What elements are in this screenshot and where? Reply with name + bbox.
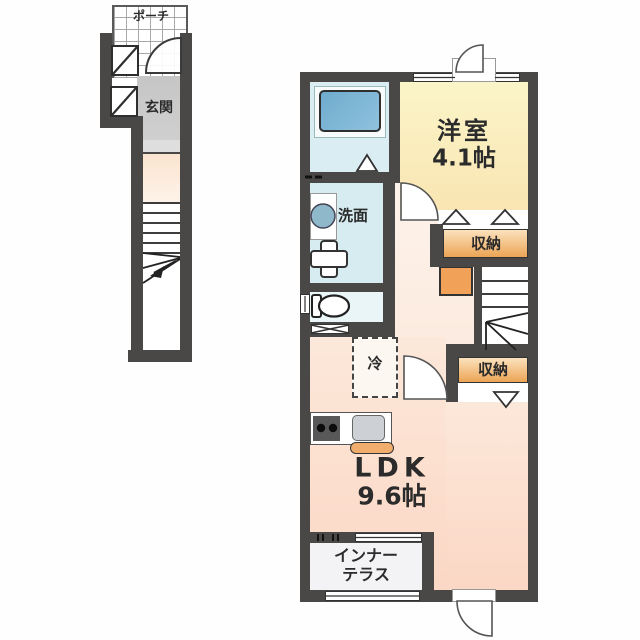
terrace-door-frame: [452, 589, 496, 602]
wall: [131, 116, 143, 362]
wall: [310, 283, 395, 292]
stairwell-floor: [143, 203, 180, 350]
wall: [389, 82, 400, 172]
floor-plan: ポーチ 玄関 洋室 4.1帖 収納 収納 洗面 冷 LDK 9.6帖 インナー …: [0, 0, 640, 640]
refrigerator-label: 冷: [367, 357, 382, 372]
wall: [383, 172, 395, 337]
inner-terrace-label-line1: インナー: [334, 548, 398, 564]
wall: [422, 532, 434, 590]
wall: [300, 72, 310, 602]
entrance-label: 玄関: [145, 101, 173, 115]
louver-window: [311, 324, 349, 334]
storage-lower-doorstrip: [458, 383, 528, 402]
ldk-size-label: 9.6帖: [357, 484, 426, 509]
window: [325, 591, 420, 601]
wall: [430, 258, 528, 267]
stair-hall-square: [439, 266, 473, 296]
storage-lower-label: 収納: [478, 363, 508, 378]
window: [413, 73, 455, 82]
window: [355, 533, 422, 542]
meter-box: [110, 86, 138, 117]
western-room-size-label: 4.1帖: [432, 148, 496, 171]
inner-terrace-label-line2: テラス: [342, 567, 390, 583]
wall: [474, 267, 482, 350]
western-room-label: 洋室: [437, 119, 491, 143]
porch-label: ポーチ: [133, 10, 169, 22]
wall: [446, 344, 528, 357]
kitchen-stove: [313, 416, 340, 441]
stair-landing-upper: [143, 154, 180, 203]
washroom-label: 洗面: [338, 209, 368, 224]
wall: [446, 344, 458, 402]
window: [300, 294, 310, 314]
entry-door-frame: [452, 58, 496, 82]
window: [495, 73, 520, 82]
wall: [528, 72, 538, 602]
ldk-label: LDK: [354, 455, 430, 482]
meter-box: [111, 45, 139, 76]
kitchen-sink: [352, 415, 385, 441]
ldk-floor-right: [446, 402, 528, 590]
toilet-room-floor: [310, 292, 383, 322]
wall: [180, 33, 192, 362]
storage-upper-label: 収納: [471, 237, 501, 252]
entrance-step: [143, 140, 180, 154]
unit-stairs-floor: [482, 267, 528, 350]
wall: [128, 350, 192, 362]
wash-basin-counter: [310, 193, 337, 240]
bathtub: [319, 90, 381, 132]
